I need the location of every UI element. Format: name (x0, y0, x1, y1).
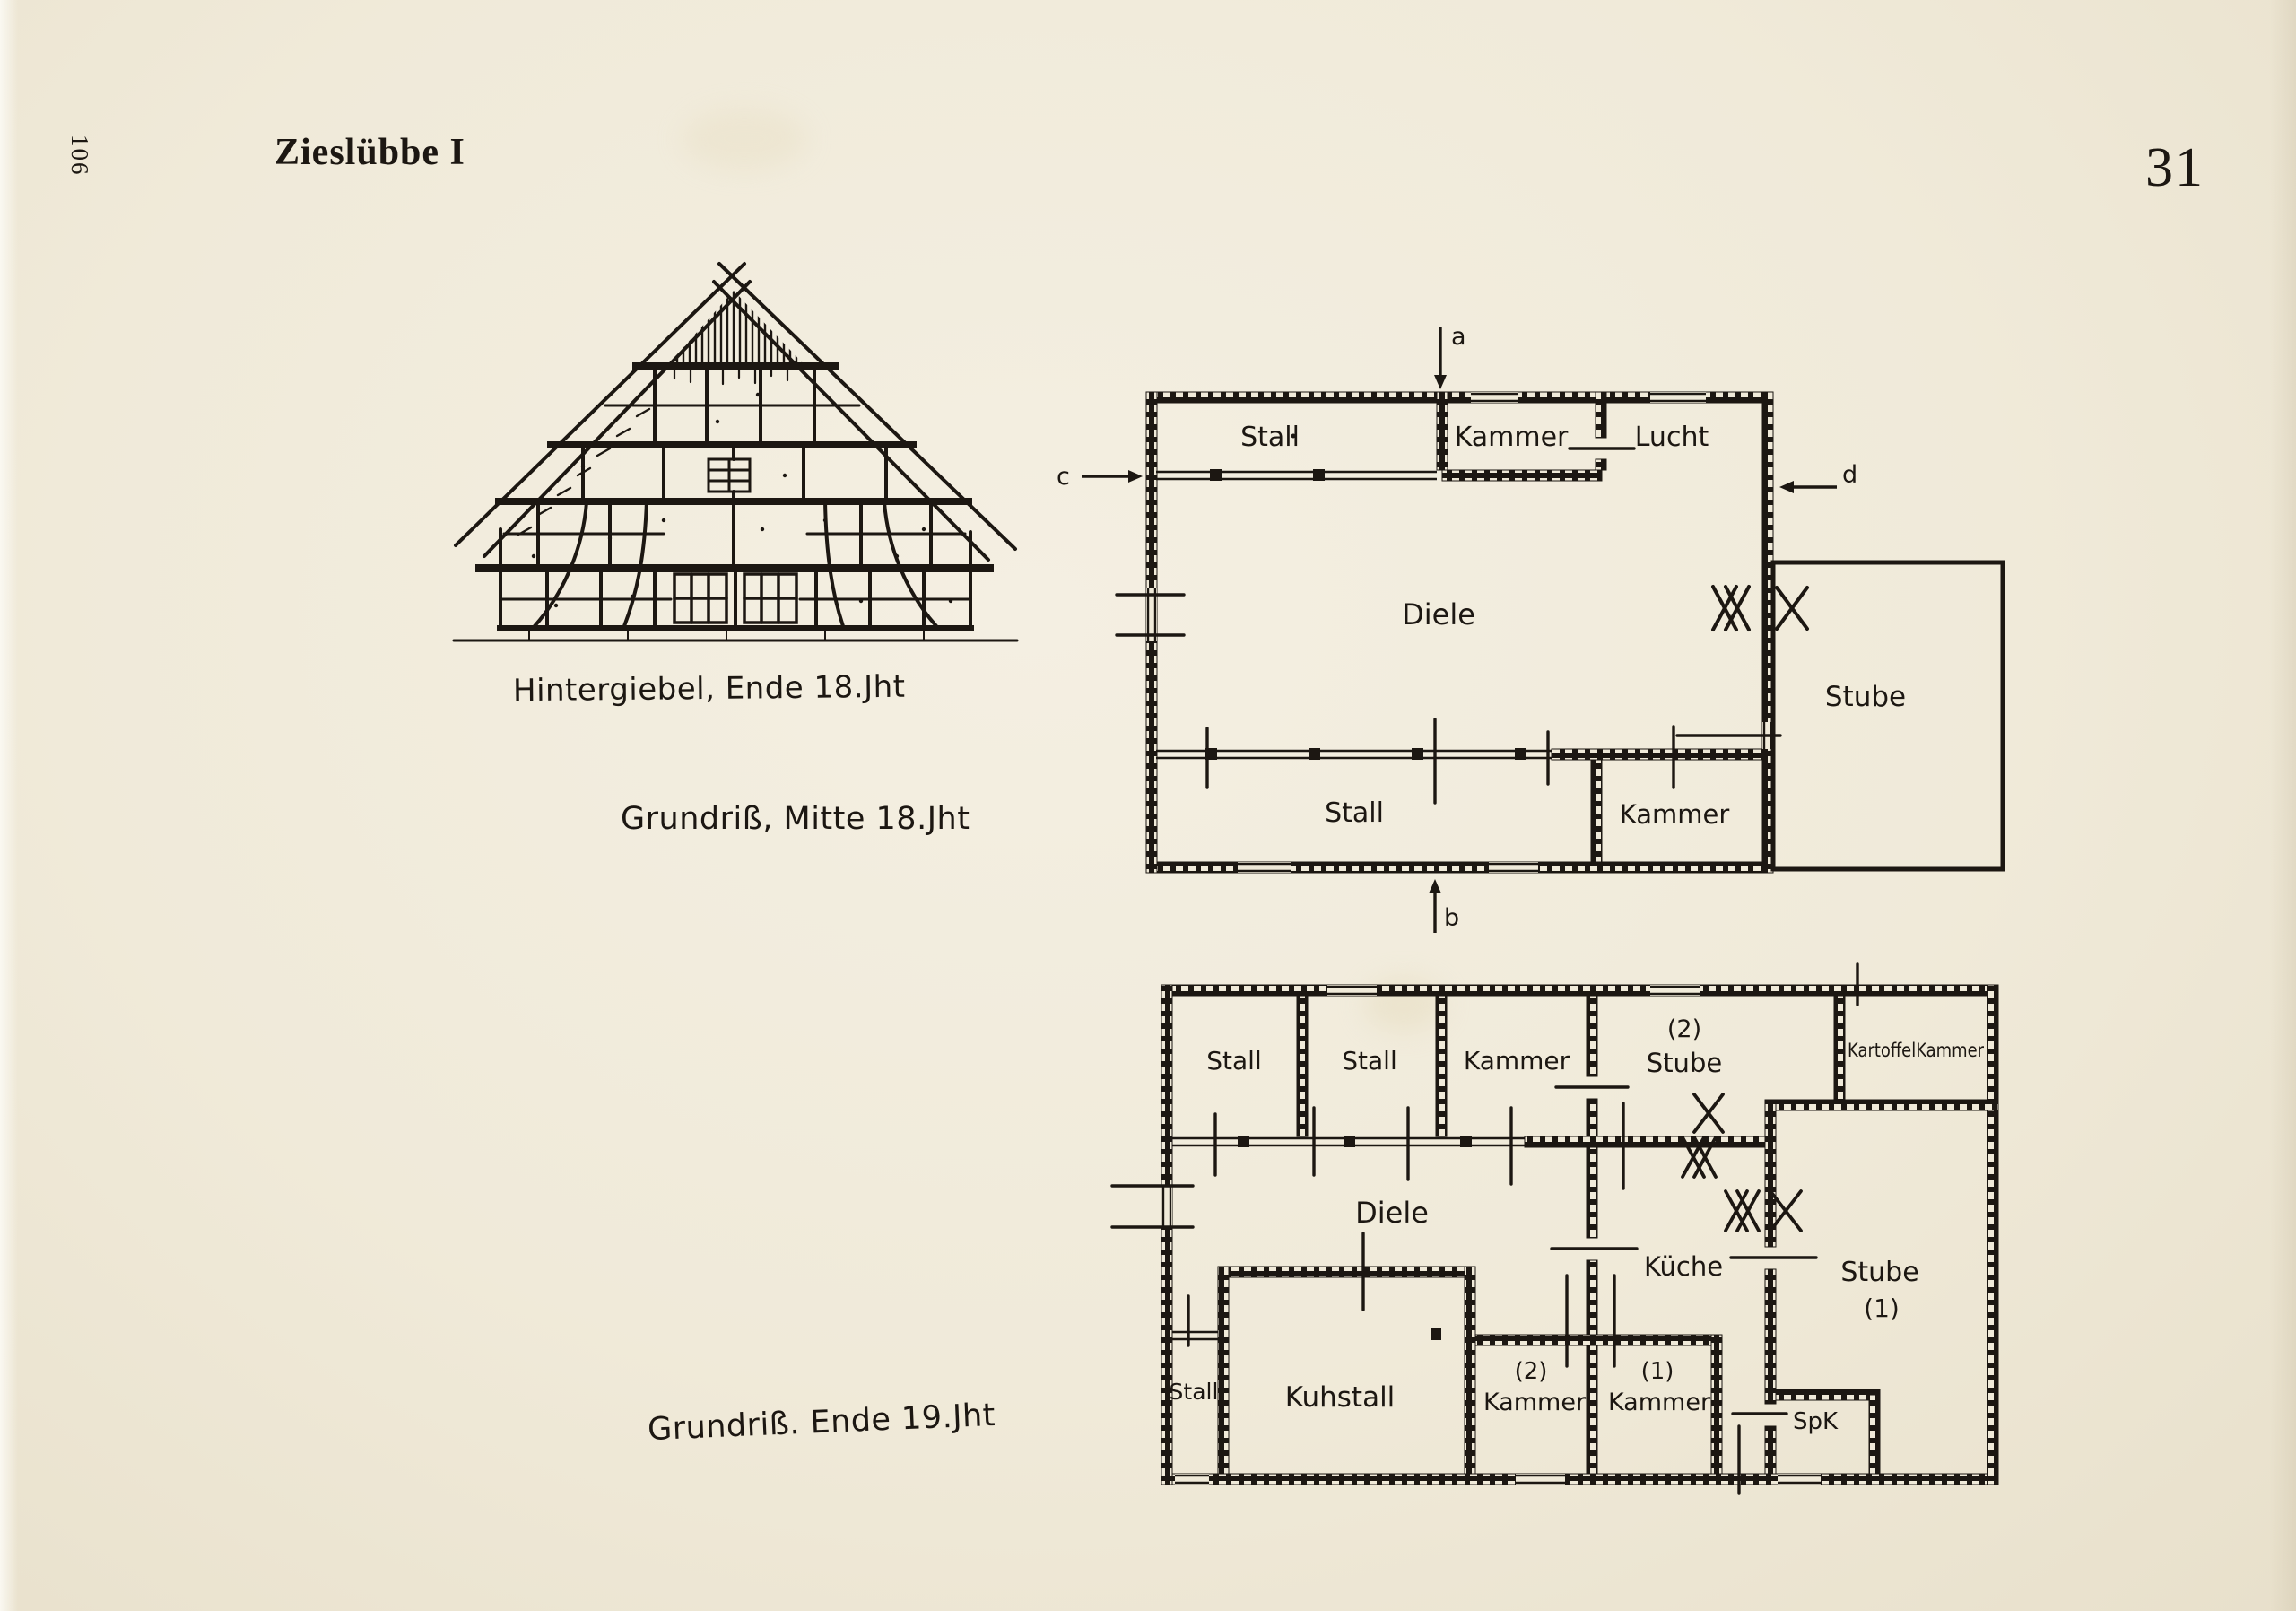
section-label-d: d (1842, 461, 1857, 489)
section-arrow-a (1434, 327, 1447, 389)
room-label-diele: Diele (1402, 597, 1475, 631)
paper-stain (682, 108, 807, 170)
lattice-window (674, 574, 726, 623)
double-cross-mark (1726, 1191, 1759, 1231)
book-page: 106 Zieslübbe I 31 (0, 0, 2296, 1611)
double-cross-mark (1713, 587, 1749, 630)
room-label-stall-top: Stall (1240, 422, 1300, 453)
double-cross-mark (1683, 1137, 1716, 1177)
attic-window (709, 459, 750, 492)
lattice-window (744, 574, 796, 623)
post-dot (1431, 1328, 1441, 1340)
room-label-diele: Diele (1355, 1196, 1429, 1230)
room-label-lucht: Lucht (1635, 422, 1709, 453)
room-label-kuhstall: Kuhstall (1285, 1381, 1396, 1414)
room-label-kartoffelkammer: KartoffelKammer (1848, 1040, 1984, 1061)
room-label-stall-2: Stall (1342, 1046, 1396, 1075)
cross-mark (1777, 588, 1807, 629)
margin-page-number: 106 (65, 135, 93, 177)
room-label-stube: Stube (1825, 681, 1906, 713)
room-label-stall-1: Stall (1206, 1046, 1261, 1075)
room-label-stube1: Stube (1840, 1257, 1918, 1288)
room-label-kammer1: Kammer (1608, 1389, 1711, 1416)
section-label-c: c (1057, 463, 1070, 491)
room-label-kueche: Küche (1644, 1251, 1723, 1282)
room-label-spk: SpK (1793, 1408, 1839, 1435)
room-label-kammer2: Kammer (1483, 1389, 1587, 1416)
floor-plan-mid-18th-century: a b c d Stall Kammer Lucht Diel (1022, 314, 2063, 951)
thin-partition (1156, 469, 1552, 760)
stube-annex-outline (1773, 562, 2003, 869)
section-arrow-d (1779, 481, 1837, 493)
room-label-kammer1-number: (1) (1641, 1358, 1674, 1385)
gable-elevation-drawing (448, 260, 1022, 664)
page-number: 31 (2145, 136, 2205, 200)
room-label-stube1-number: (1) (1864, 1293, 1900, 1323)
section-arrow-b (1429, 879, 1441, 933)
room-label-kammer-top: Kammer (1455, 422, 1569, 453)
plan-mid18-caption: Grundriß, Mitte 18.Jht (621, 801, 970, 837)
ground-line (454, 631, 1017, 640)
floor-plan-end-19th-century: Stall Stall Kammer (2) Stube KartoffelKa… (1103, 951, 2054, 1525)
room-label-kammer2-number: (2) (1515, 1358, 1548, 1385)
room-label-stube2: Stube (1647, 1048, 1722, 1078)
section-arrow-c (1082, 470, 1143, 483)
timber-frame (475, 362, 994, 631)
room-label-stall-bottom: Stall (1325, 797, 1384, 829)
gable-caption: Hintergiebel, Ende 18.Jht (513, 669, 906, 710)
plan-end19-caption: Grundriß. Ende 19.Jht (647, 1398, 996, 1448)
page-title: Zieslübbe I (274, 131, 465, 174)
room-label-stube2-number: (2) (1667, 1015, 1701, 1043)
room-label-kammer-bottom: Kammer (1620, 799, 1730, 830)
section-label-b: b (1444, 904, 1459, 932)
room-label-stall-left: Stall (1170, 1379, 1219, 1405)
room-label-kammer-top: Kammer (1464, 1046, 1570, 1075)
section-label-a: a (1451, 323, 1466, 351)
cross-mark (1694, 1094, 1723, 1132)
